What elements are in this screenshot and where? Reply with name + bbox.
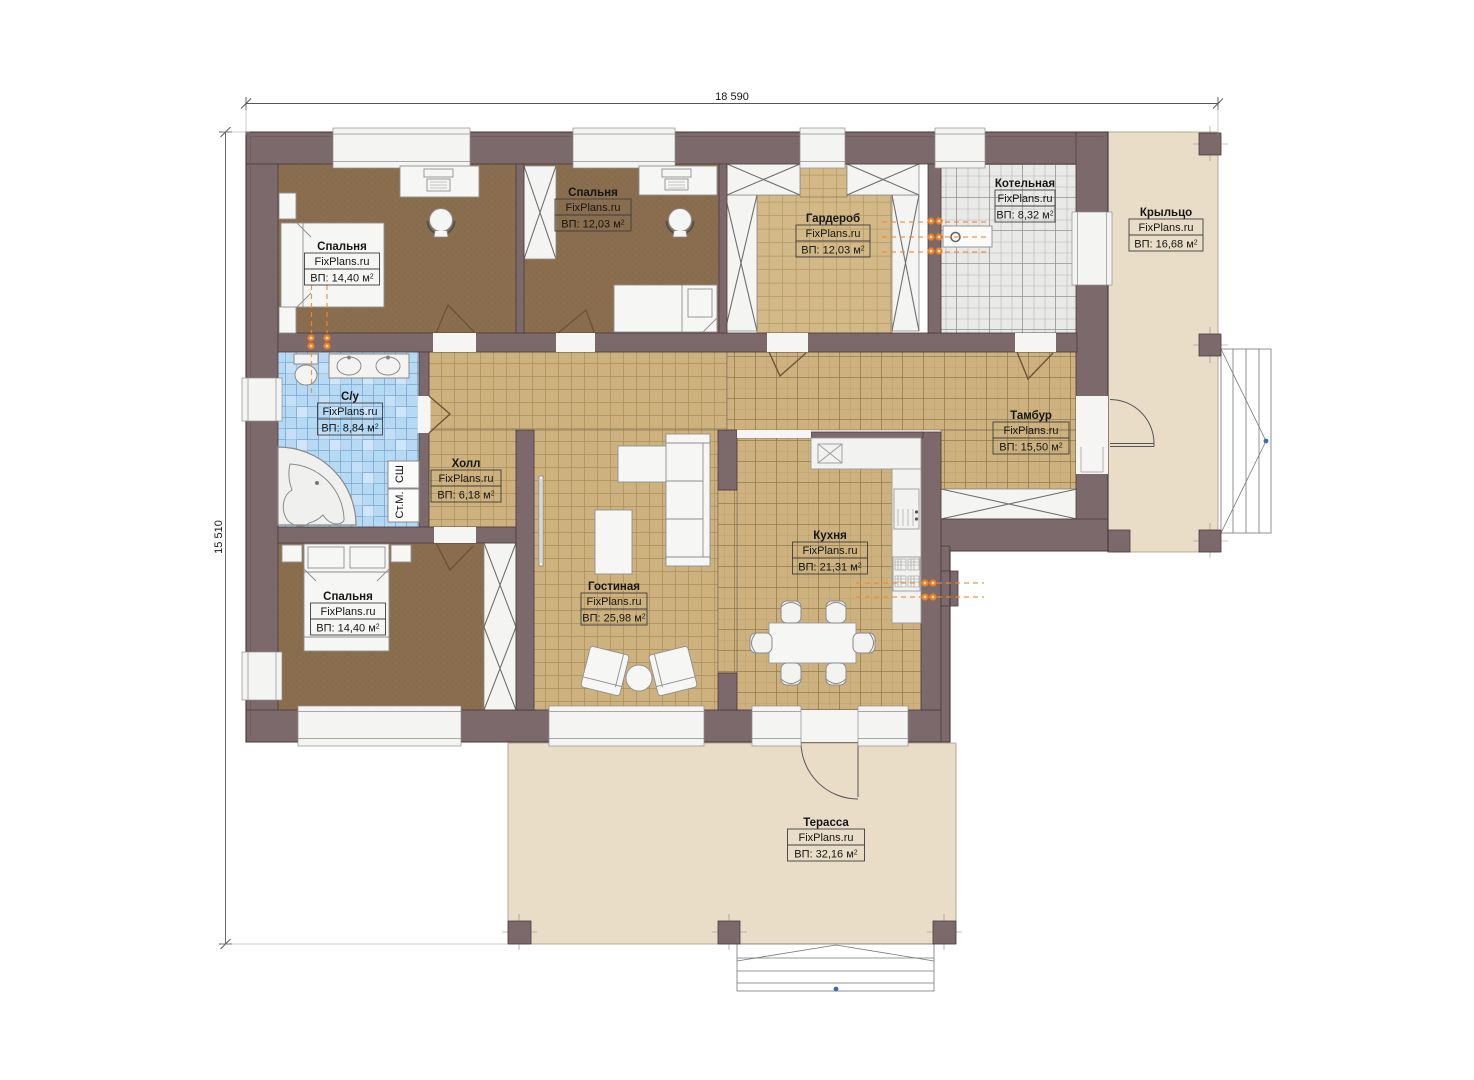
svg-text:FixPlans.ru: FixPlans.ru [586, 596, 641, 608]
svg-text:FixPlans.ru: FixPlans.ru [320, 606, 375, 618]
svg-text:Гостиная: Гостиная [588, 581, 640, 593]
svg-text:ВП: 14,40 м2: ВП: 14,40 м2 [316, 623, 380, 635]
svg-text:Котельная: Котельная [995, 178, 1055, 190]
svg-text:15 510: 15 510 [213, 520, 225, 554]
svg-text:FixPlans.ru: FixPlans.ru [1003, 425, 1058, 437]
svg-text:ВП: 8,32 м2: ВП: 8,32 м2 [996, 210, 1053, 222]
svg-text:FixPlans.ru: FixPlans.ru [798, 832, 853, 844]
svg-text:ВП: 32,16 м2: ВП: 32,16 м2 [794, 849, 858, 861]
svg-text:ВП: 12,03 м2: ВП: 12,03 м2 [561, 219, 625, 231]
svg-text:FixPlans.ru: FixPlans.ru [565, 202, 620, 214]
svg-text:Гардероб: Гардероб [806, 213, 860, 225]
svg-text:ВП: 14,40 м2: ВП: 14,40 м2 [310, 273, 374, 285]
svg-text:FixPlans.ru: FixPlans.ru [314, 256, 369, 268]
svg-text:FixPlans.ru: FixPlans.ru [1138, 222, 1193, 234]
svg-text:ВП: 12,03 м2: ВП: 12,03 м2 [801, 245, 865, 257]
svg-text:С/у: С/у [341, 391, 360, 403]
svg-text:ВП: 25,98 м2: ВП: 25,98 м2 [582, 613, 646, 625]
svg-text:Ст.М.: Ст.М. [394, 491, 406, 518]
svg-text:ВП: 6,18 м2: ВП: 6,18 м2 [437, 490, 494, 502]
svg-text:18 590: 18 590 [715, 91, 749, 103]
svg-text:Спальня: Спальня [568, 187, 618, 199]
svg-text:СШ: СШ [394, 465, 406, 483]
svg-text:Крыльцо: Крыльцо [1140, 207, 1192, 219]
svg-text:ВП: 15,50 м2: ВП: 15,50 м2 [999, 442, 1063, 454]
svg-text:FixPlans.ru: FixPlans.ru [805, 228, 860, 240]
svg-text:ВП: 21,31 м2: ВП: 21,31 м2 [798, 562, 862, 574]
svg-text:Тамбур: Тамбур [1010, 410, 1052, 422]
svg-text:ВП: 16,68 м2: ВП: 16,68 м2 [1134, 239, 1198, 251]
svg-text:Терасса: Терасса [803, 817, 849, 829]
svg-text:FixPlans.ru: FixPlans.ru [802, 545, 857, 557]
svg-text:FixPlans.ru: FixPlans.ru [322, 406, 377, 418]
svg-text:Холл: Холл [452, 458, 481, 470]
svg-text:FixPlans.ru: FixPlans.ru [997, 193, 1052, 205]
svg-text:Спальня: Спальня [323, 591, 373, 603]
svg-text:Спальня: Спальня [317, 241, 367, 253]
svg-text:ВП: 8,84 м2: ВП: 8,84 м2 [321, 423, 378, 435]
svg-text:FixPlans.ru: FixPlans.ru [438, 473, 493, 485]
svg-text:Кухня: Кухня [813, 530, 847, 542]
